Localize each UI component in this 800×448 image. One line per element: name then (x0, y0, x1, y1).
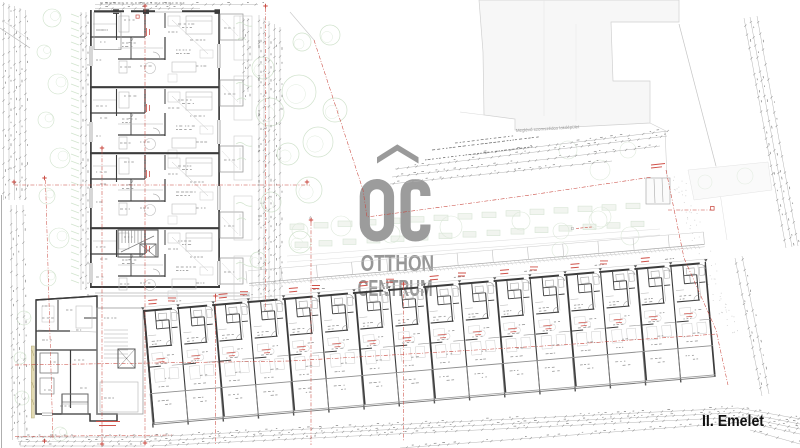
svg-text:II. Emelet: II. Emelet (702, 413, 765, 430)
svg-text:OTTHON: OTTHON (361, 250, 435, 276)
svg-text:A: A (309, 215, 312, 220)
